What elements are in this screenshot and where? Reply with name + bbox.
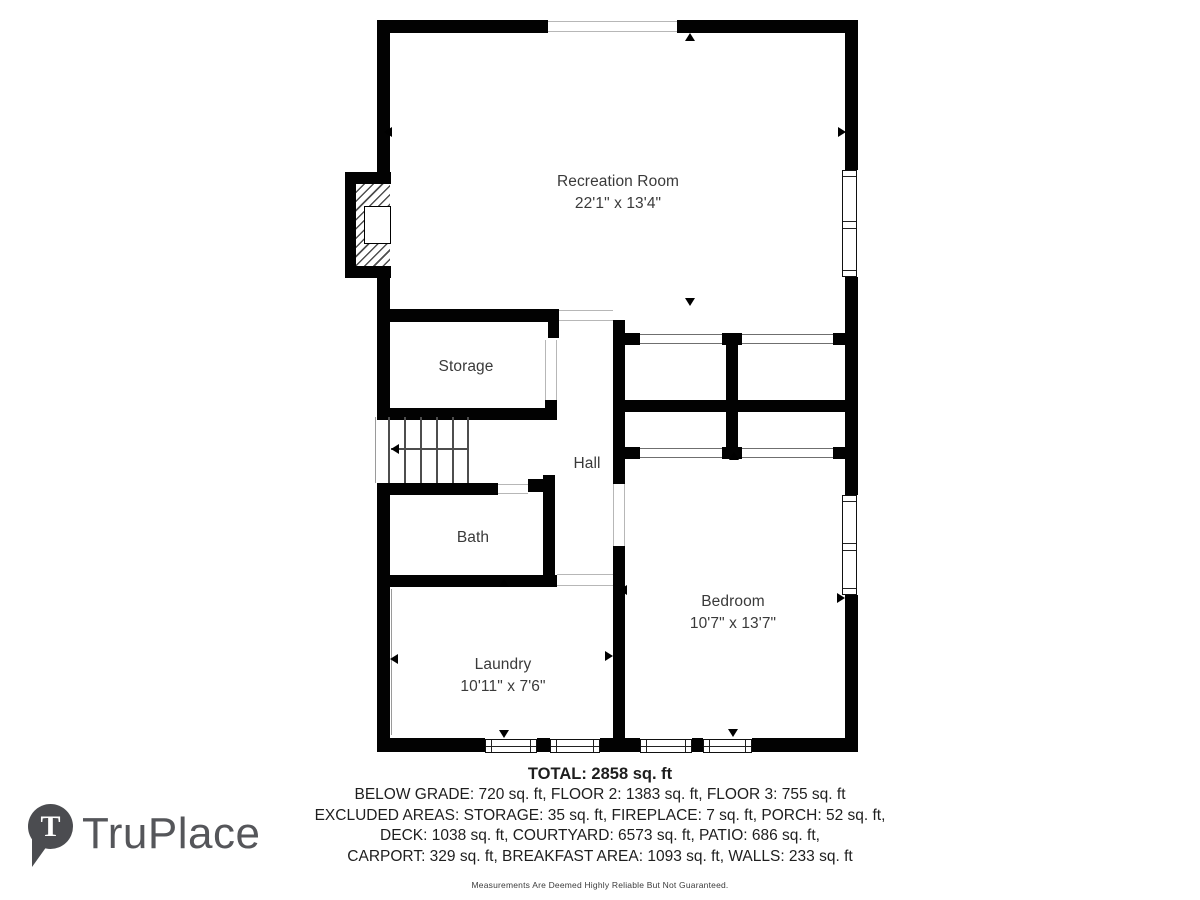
window-mullion	[551, 746, 599, 747]
closet-front	[742, 334, 833, 344]
direction-arrow-icon	[838, 127, 846, 137]
wall-segment	[528, 479, 543, 492]
window-mullion	[843, 543, 856, 544]
window-mullion	[745, 740, 746, 752]
wall-segment	[548, 309, 559, 338]
window-mullion	[593, 740, 594, 752]
window-mullion	[486, 746, 536, 747]
wall-segment	[377, 309, 548, 322]
closet-front	[742, 448, 833, 458]
wall-segment	[377, 483, 498, 495]
window-mullion	[704, 746, 751, 747]
window-mullion	[843, 550, 856, 551]
direction-arrow-icon	[729, 452, 739, 460]
direction-arrow-icon	[384, 127, 392, 137]
stair-opening-line	[375, 417, 376, 483]
wall-opening	[548, 21, 677, 32]
closet-divider	[726, 345, 738, 449]
direction-arrow-icon	[728, 729, 738, 737]
wall-segment	[677, 20, 858, 33]
wall-segment	[692, 738, 703, 752]
logo-brand-text: TruPlace	[82, 809, 260, 859]
fireplace-firebox	[364, 206, 391, 244]
wall-segment	[845, 595, 858, 738]
wall-segment	[752, 738, 858, 752]
direction-arrow-icon	[685, 33, 695, 41]
closet-stub	[833, 447, 845, 459]
closet-front	[640, 334, 722, 344]
room-label-storage: Storage	[439, 358, 494, 376]
window	[550, 739, 600, 753]
window	[842, 495, 857, 595]
window	[485, 739, 537, 753]
wall-segment	[377, 575, 557, 587]
closet-front	[640, 448, 722, 458]
stair-tread	[404, 417, 406, 483]
summary-line: BELOW GRADE: 720 sq. ft, FLOOR 2: 1383 s…	[0, 785, 1200, 806]
room-label-bedroom: Bedroom	[701, 593, 765, 611]
window-mullion	[843, 228, 856, 229]
window-mullion	[843, 221, 856, 222]
window-mullion	[843, 176, 856, 177]
stair-tread	[467, 417, 469, 483]
room-label-bath: Bath	[457, 529, 489, 547]
truplace-pin-icon: T	[28, 804, 73, 849]
closet-stub	[625, 447, 640, 459]
fireplace-wall	[345, 266, 391, 278]
wall-segment	[377, 20, 390, 172]
closet-stub	[625, 333, 640, 345]
direction-arrow-icon	[499, 579, 509, 587]
direction-arrow-icon	[605, 651, 613, 661]
room-label-laundry: Laundry	[475, 656, 532, 674]
direction-arrow-icon	[837, 593, 845, 603]
direction-arrow-icon	[619, 585, 627, 595]
summary-total: TOTAL: 2858 sq. ft	[0, 763, 1200, 785]
floorplan-canvas: Recreation Room 22'1" x 13'4" Storage Ha…	[0, 0, 1200, 900]
window-mullion	[843, 270, 856, 271]
stair-tread	[436, 417, 438, 483]
closet-stub	[833, 333, 845, 345]
wall-segment	[845, 20, 858, 170]
window-mullion	[685, 740, 686, 752]
disclaimer-text: Measurements Are Deemed Highly Reliable …	[0, 880, 1200, 890]
wall-segment	[613, 400, 858, 412]
direction-arrow-icon	[499, 730, 509, 738]
closet-stub	[722, 333, 742, 345]
window	[703, 739, 752, 753]
wall-segment	[377, 20, 548, 33]
wall-segment	[543, 475, 555, 587]
stair-tread	[420, 417, 422, 483]
room-dims-laundry: 10'11" x 7'6"	[460, 678, 545, 696]
bath-door-opening	[498, 484, 528, 494]
window	[842, 170, 857, 277]
stair-direction-line	[391, 448, 468, 450]
window	[640, 739, 692, 753]
wall-segment	[600, 738, 640, 752]
room-dims-recreation: 22'1" x 13'4"	[575, 195, 661, 213]
fireplace-wall	[345, 172, 356, 278]
window-mullion	[641, 746, 691, 747]
window-mullion	[530, 740, 531, 752]
room-label-hall: Hall	[573, 455, 600, 473]
laundry-door-opening	[557, 574, 613, 586]
stair-tread	[388, 417, 390, 483]
storage-door-opening	[545, 340, 557, 400]
stair-tread	[452, 417, 454, 483]
wall-segment	[377, 278, 390, 417]
wall-segment	[613, 546, 625, 738]
window-mullion	[843, 588, 856, 589]
direction-arrow-icon	[391, 444, 399, 454]
hall-entry-opening	[559, 310, 613, 321]
room-dims-bedroom: 10'7" x 13'7"	[690, 615, 776, 633]
bedroom-door-opening	[613, 484, 625, 546]
wall-segment	[537, 738, 550, 752]
room-label-recreation: Recreation Room	[557, 173, 679, 191]
direction-arrow-icon	[685, 298, 695, 306]
direction-arrow-icon	[390, 654, 398, 664]
window-mullion	[843, 501, 856, 502]
wall-segment	[377, 483, 390, 738]
wall-segment	[377, 738, 485, 752]
wall-segment	[845, 277, 858, 495]
